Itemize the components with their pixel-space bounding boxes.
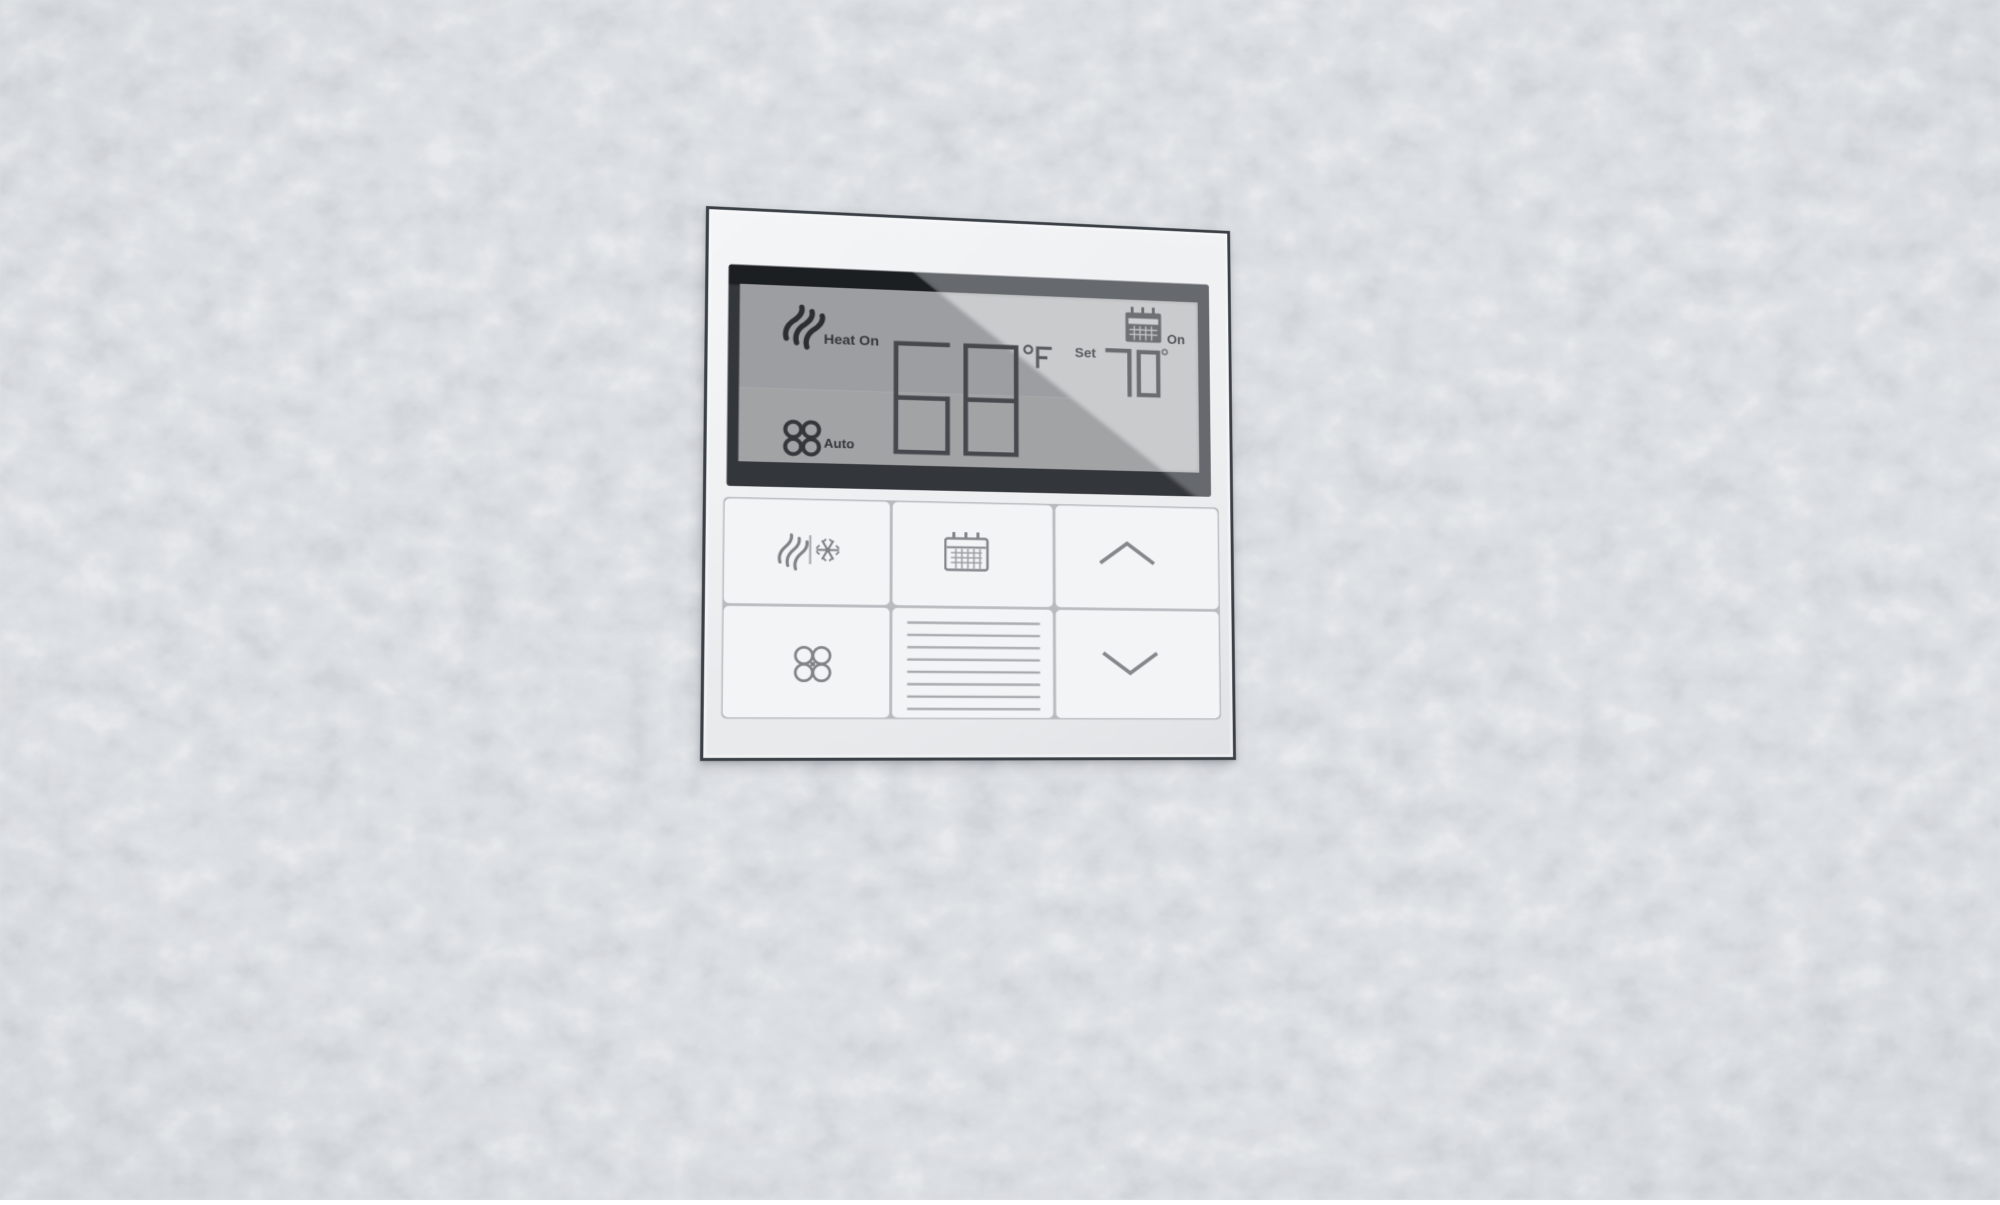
svg-text:Heat On: Heat On (824, 332, 879, 349)
svg-text:Auto: Auto (824, 436, 855, 451)
svg-text:On: On (1167, 332, 1185, 347)
svg-text:Set: Set (1075, 346, 1096, 361)
